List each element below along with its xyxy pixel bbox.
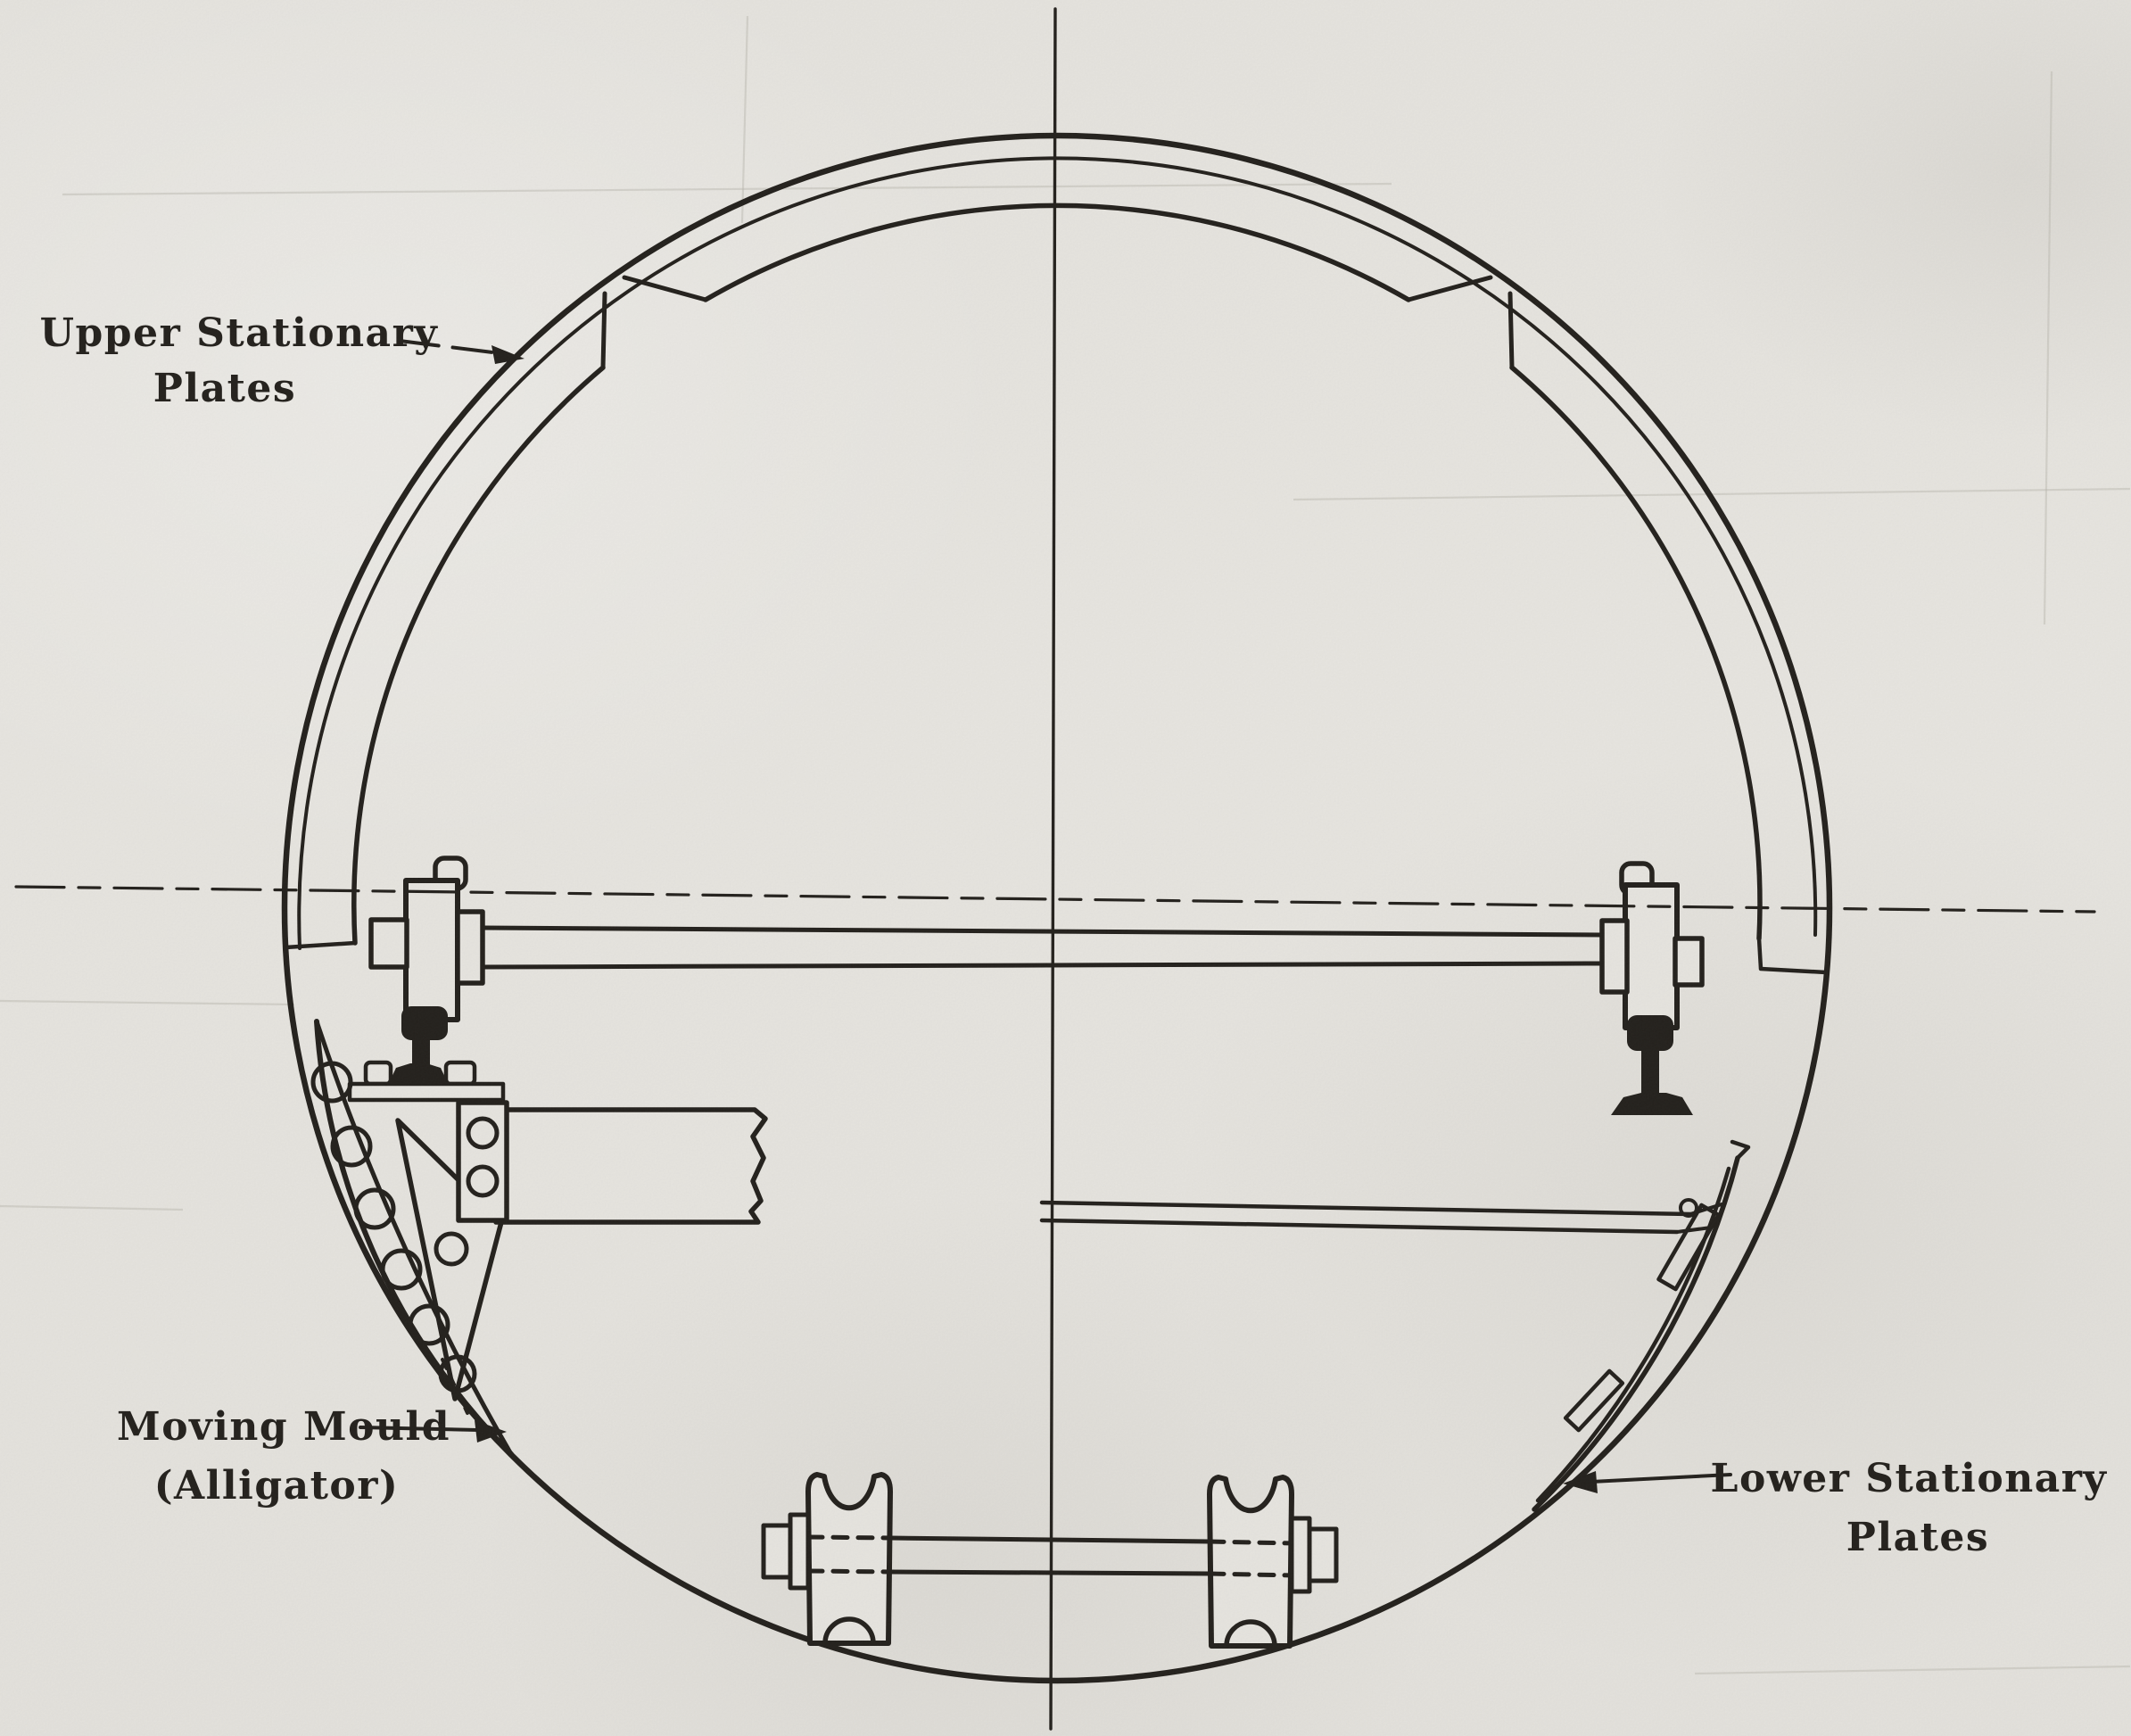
diagram-canvas: Upper Stationary Plates Moving Mould (Al… bbox=[0, 0, 2131, 1736]
paper-grain-overlay bbox=[0, 0, 2131, 1736]
scanned-diagram-page: Upper Stationary Plates Moving Mould (Al… bbox=[0, 0, 2131, 1736]
